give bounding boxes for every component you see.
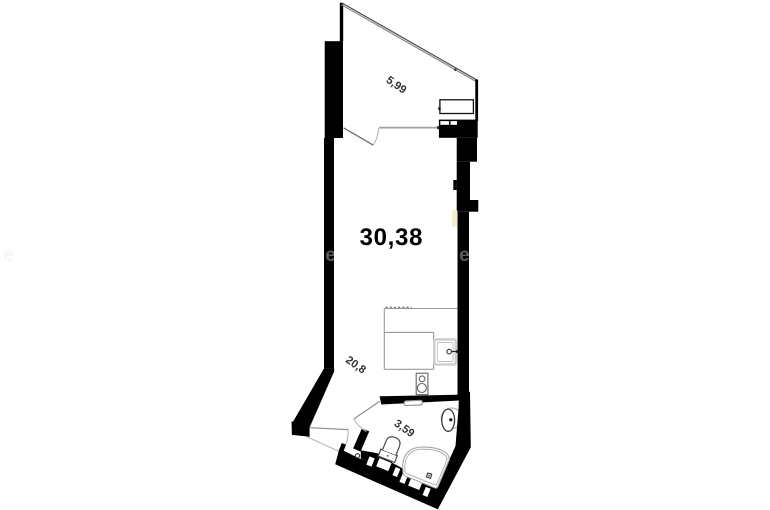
svg-text:е: е — [3, 245, 14, 266]
svg-text:е: е — [459, 245, 470, 266]
svg-text:е: е — [325, 245, 336, 266]
